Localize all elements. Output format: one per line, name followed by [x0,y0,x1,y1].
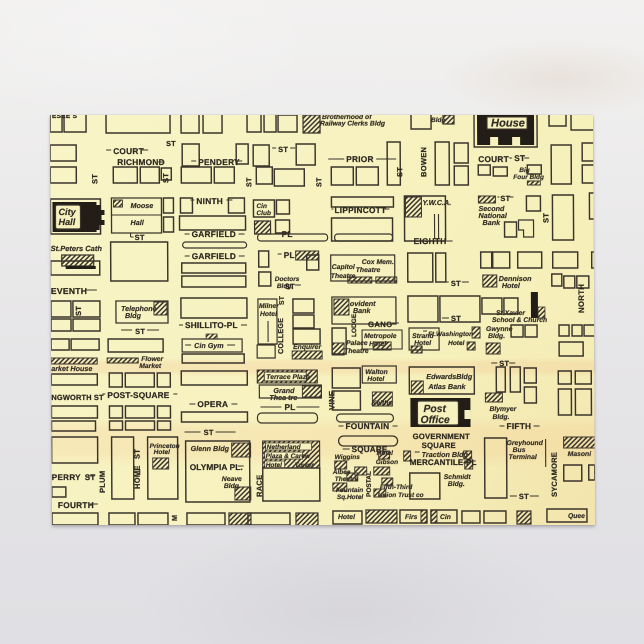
svg-text:FOURTH: FOURTH [58,500,94,510]
svg-text:ST: ST [278,145,288,154]
svg-text:ST: ST [135,233,145,242]
svg-text:COURT: COURT [478,154,509,164]
svg-text:PLUM: PLUM [98,471,107,493]
svg-text:Flower: Flower [141,356,163,363]
svg-text:Bldg: Bldg [125,311,142,320]
svg-text:Club: Club [256,210,271,217]
svg-text:Bus: Bus [513,447,526,454]
svg-text:Hall: Hall [131,218,145,227]
svg-text:Blymyer: Blymyer [489,406,516,413]
svg-text:Hall: Hall [58,217,75,227]
svg-text:Wiggins: Wiggins [335,454,361,461]
svg-text:Keiths: Keiths [371,400,392,407]
svg-text:Schmidt: Schmidt [444,474,472,481]
svg-text:Thea tre: Thea tre [269,393,297,402]
svg-text:Gibson: Gibson [376,459,398,466]
svg-text:arket House: arket House [51,364,92,373]
svg-text:Firs: Firs [405,514,418,521]
svg-text:ST: ST [133,449,142,459]
svg-text:ST: ST [90,174,99,184]
svg-text:Cin: Cin [256,203,267,210]
svg-text:Four Bldg: Four Bldg [513,174,544,181]
svg-text:Palace: Palace [346,340,368,347]
svg-text:House: House [491,118,525,130]
svg-text:Walton: Walton [365,369,388,376]
svg-text:Bank: Bank [483,218,502,227]
svg-text:M: M [170,515,179,521]
svg-text:Railway Clerks Bldg: Railway Clerks Bldg [320,121,386,128]
svg-text:Fountain: Fountain [336,487,364,494]
svg-text:ST: ST [395,167,404,177]
svg-text:Atlas Bank: Atlas Bank [427,382,466,391]
svg-text:Moose: Moose [130,201,153,210]
svg-text:Milner: Milner [259,303,279,310]
svg-text:Greyhound: Greyhound [507,440,544,447]
svg-text:Hotel: Hotel [367,376,384,383]
svg-text:Hotel: Hotel [154,449,170,456]
svg-text:ST: ST [541,213,550,223]
svg-text:PENDERY: PENDERY [198,157,240,167]
svg-text:Hotel: Hotel [448,340,464,347]
svg-text:OPERA: OPERA [197,399,228,409]
svg-text:Hotel: Hotel [260,311,277,318]
svg-text:Theatre: Theatre [344,348,369,355]
svg-text:NINTH: NINTH [196,196,223,206]
svg-text:ST: ST [514,153,525,163]
svg-text:NGWORTH ST: NGWORTH ST [51,393,104,402]
svg-text:Terrace Plaza: Terrace Plaza [266,374,310,381]
svg-text:Sq.Hotel: Sq.Hotel [337,494,364,501]
svg-text:Terminal: Terminal [509,454,537,461]
svg-text:GANO: GANO [368,320,392,329]
svg-text:GARFIELD: GARFIELD [192,251,236,261]
svg-text:SQUARE: SQUARE [422,441,456,450]
svg-text:ST: ST [161,173,170,183]
svg-text:COLLEGE: COLLEGE [276,318,285,354]
svg-text:EVENTH: EVENTH [51,286,87,296]
svg-text:ST: ST [451,279,461,288]
svg-text:ST: ST [500,194,510,203]
svg-text:Capitol: Capitol [332,264,355,271]
svg-text:Netherland: Netherland [267,444,302,451]
svg-text:ESEE S: ESEE S [52,115,78,120]
svg-text:ST: ST [279,295,286,305]
svg-text:RICHMOND: RICHMOND [117,157,165,167]
svg-text:Glenn Bldg: Glenn Bldg [191,444,230,453]
svg-text:St.Xavier: St.Xavier [496,310,525,317]
svg-text:POST-SQUARE: POST-SQUARE [107,390,169,400]
svg-text:ST: ST [244,177,253,187]
svg-text:Cox Mem.: Cox Mem. [362,259,394,266]
svg-text:ST: ST [285,282,295,291]
svg-text:Masoni: Masoni [568,451,592,458]
svg-text:Hotel: Hotel [377,450,393,457]
svg-text:Bldg.: Bldg. [488,333,505,340]
svg-text:ST: ST [314,177,323,187]
svg-text:MERCANTILE-PL: MERCANTILE-PL [410,458,477,467]
svg-text:Y.W.C.A.: Y.W.C.A. [422,198,451,207]
svg-text:Quee: Quee [568,513,585,520]
svg-text:SYCAMORE: SYCAMORE [550,452,559,497]
svg-text:Bldg.: Bldg. [448,481,465,488]
svg-text:Cin: Cin [440,514,451,521]
svg-text:Neave: Neave [222,476,242,483]
svg-text:Office: Office [420,415,450,426]
svg-text:COURT: COURT [113,146,144,156]
svg-text:OLYMPIA PL.: OLYMPIA PL. [190,462,243,472]
svg-text:Hotel: Hotel [502,281,521,290]
svg-text:Hotel: Hotel [338,514,355,521]
svg-text:LODGE.: LODGE. [351,312,358,337]
svg-text:EdwardsBldg: EdwardsBldg [426,372,473,381]
svg-text:ST: ST [74,306,83,316]
svg-text:Gwynne: Gwynne [486,326,513,333]
svg-text:Post: Post [423,404,446,415]
svg-text:ST: ST [519,492,529,501]
svg-text:Metropole: Metropole [364,333,397,340]
svg-text:GARFIELD: GARFIELD [192,229,236,239]
svg-text:Enquirer: Enquirer [293,344,321,351]
svg-text:ST: ST [85,473,96,482]
svg-text:LIPPINCOTT: LIPPINCOTT [334,205,386,215]
svg-text:Market: Market [139,363,162,370]
svg-text:NORTH: NORTH [577,284,586,313]
svg-text:Bldg.: Bldg. [492,414,509,421]
svg-text:PL: PL [284,250,295,260]
svg-text:PERRY: PERRY [52,473,81,482]
svg-text:Theatre: Theatre [356,267,381,274]
svg-text:PRIOR: PRIOR [346,154,374,164]
svg-text:PL: PL [284,402,295,412]
svg-text:BOWEN: BOWEN [419,147,428,177]
svg-text:SHILLITO-PL: SHILLITO-PL [185,320,238,330]
svg-text:ST: ST [204,428,214,437]
svg-text:ST: ST [135,327,145,336]
svg-text:ST: ST [451,314,461,323]
svg-text:HOME: HOME [133,465,142,489]
svg-text:ST: ST [166,139,176,148]
svg-text:Cin Gym: Cin Gym [194,341,224,350]
svg-text:Big: Big [519,167,530,174]
svg-text:EIGHTH: EIGHTH [414,236,447,246]
svg-text:St.Peters Cath: St.Peters Cath [51,244,103,253]
svg-text:Plaza & Carew: Plaza & Carew [266,453,311,460]
svg-text:GOVERNMENT: GOVERNMENT [413,432,471,441]
svg-text:City: City [58,207,76,217]
svg-text:FIFTH: FIFTH [506,421,531,431]
svg-text:Ft.Washington: Ft.Washington [428,331,473,338]
